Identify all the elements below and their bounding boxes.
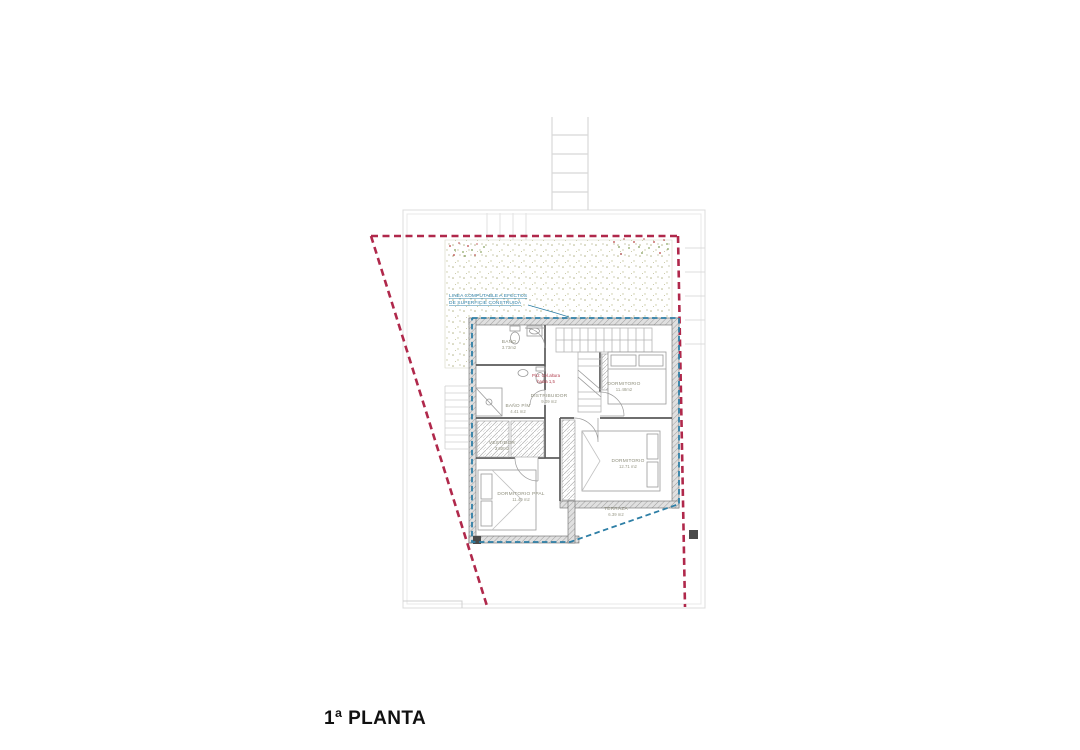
room-area-distribuidor: 9.09 m2: [541, 399, 557, 404]
room-area-terraza: 6.39 m2: [608, 512, 624, 517]
floor-plan-page: LINEA COMPUTABLE A EFECTOS DE SUPERFICIE…: [0, 0, 1080, 750]
room-area-bano: 3.73m2: [502, 345, 517, 350]
room-area-dormitorio-ppal: 11.40 m2: [512, 497, 530, 502]
exterior-steps: [445, 386, 468, 449]
computable-note-line1: LINEA COMPUTABLE A EFECTOS: [449, 293, 527, 299]
room-area-bano-pm: 4.41 m2: [510, 409, 526, 414]
room-area-dormitorio-2: 12.71 m2: [619, 464, 638, 469]
height-note-line1: P/U: Cel.altura: [532, 373, 561, 378]
room-label-bano-pm: BAÑO P/M: [505, 402, 530, 409]
room-area-dormitorio-1: 11.48m2: [616, 387, 633, 392]
computable-note-line2: DE SUPERFICIE CONSTRUIDA: [449, 300, 522, 306]
room-area-vestidor: 3.60m2: [495, 446, 510, 451]
height-note-line2: hasta 1,5: [537, 379, 555, 384]
page-title: 1ª PLANTA: [324, 708, 426, 730]
top-stairs: [552, 117, 588, 210]
room-label-bano: BAÑO: [502, 338, 516, 345]
floor-plan-drawing: LINEA COMPUTABLE A EFECTOS DE SUPERFICIE…: [0, 0, 1080, 750]
